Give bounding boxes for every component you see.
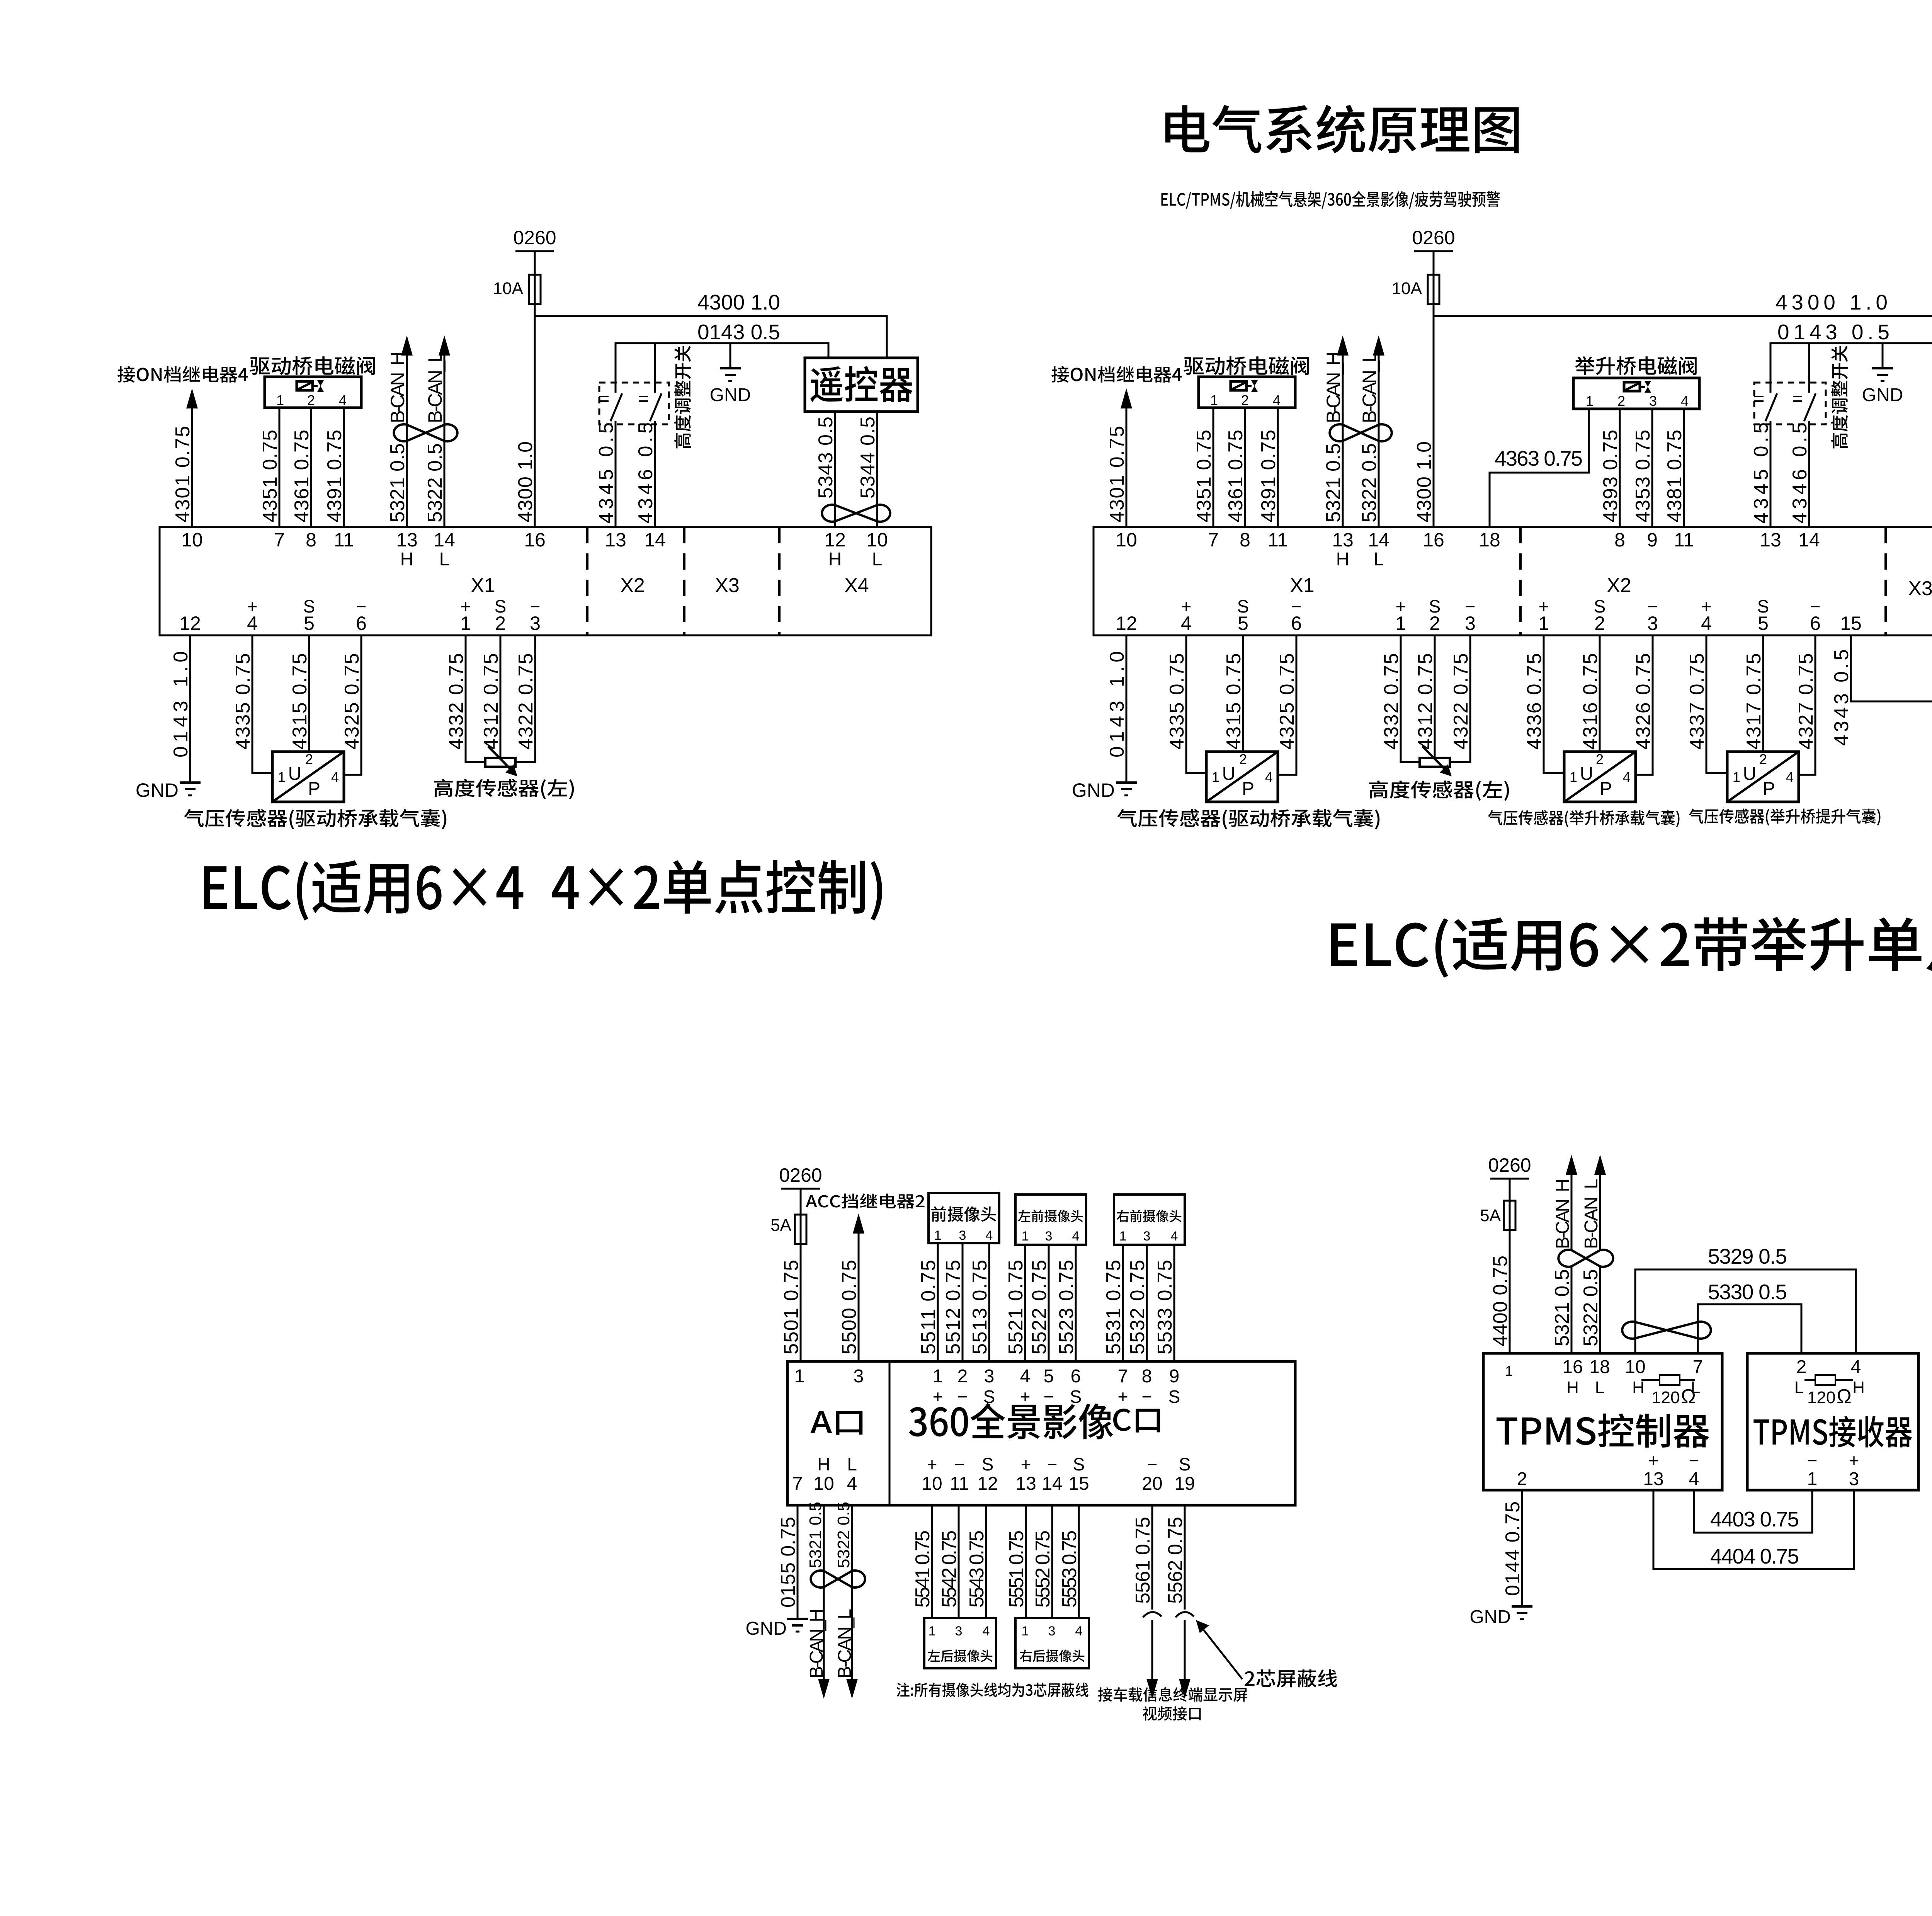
- svg-text:S: S: [1168, 1387, 1180, 1407]
- svg-text:7: 7: [1208, 529, 1219, 551]
- svg-text:5522 0.75: 5522 0.75: [1028, 1260, 1051, 1354]
- svg-text:4337 0.75: 4337 0.75: [1686, 653, 1708, 750]
- svg-text:4345 0.5: 4345 0.5: [595, 422, 617, 524]
- svg-text:1: 1: [1733, 769, 1740, 785]
- svg-text:+: +: [247, 596, 258, 616]
- svg-text:B-CAN_H: B-CAN_H: [806, 1609, 827, 1678]
- svg-text:−: −: [1689, 1450, 1699, 1470]
- svg-text:GND: GND: [710, 385, 751, 405]
- svg-text:4300 1.0: 4300 1.0: [1776, 290, 1888, 314]
- svg-text:4: 4: [1681, 393, 1689, 409]
- svg-text:4: 4: [1072, 1229, 1080, 1244]
- svg-text:5523 0.75: 5523 0.75: [1055, 1260, 1078, 1354]
- svg-text:X2: X2: [1607, 574, 1631, 597]
- svg-text:4322 0.75: 4322 0.75: [515, 653, 537, 750]
- svg-text:S: S: [1179, 1454, 1191, 1474]
- svg-text:B-CAN_H: B-CAN_H: [1553, 1179, 1573, 1249]
- svg-text:5501 0.75: 5501 0.75: [780, 1260, 803, 1354]
- svg-text:3: 3: [955, 1624, 963, 1639]
- svg-text:10A: 10A: [1392, 279, 1422, 298]
- svg-text:4393 0.75: 4393 0.75: [1599, 430, 1622, 522]
- svg-text:4335 0.75: 4335 0.75: [232, 653, 254, 750]
- svg-text:+: +: [1849, 1450, 1859, 1470]
- svg-text:9: 9: [1169, 1366, 1180, 1387]
- svg-text:+: +: [1118, 1387, 1128, 1407]
- svg-text:1: 1: [934, 1228, 942, 1243]
- svg-text:−: −: [1291, 596, 1302, 616]
- svg-text:1: 1: [933, 1366, 943, 1387]
- svg-text:5541 0.75: 5541 0.75: [912, 1530, 934, 1608]
- svg-text:+: +: [1701, 596, 1712, 616]
- svg-text:3: 3: [854, 1366, 864, 1387]
- svg-text:4322 0.75: 4322 0.75: [1450, 653, 1472, 750]
- svg-text:4325 0.75: 4325 0.75: [341, 653, 363, 750]
- svg-text:4: 4: [1171, 1229, 1178, 1244]
- svg-text:5330 0.5: 5330 0.5: [1708, 1280, 1787, 1304]
- svg-text:4301 0.75: 4301 0.75: [1106, 426, 1128, 522]
- svg-text:2: 2: [1517, 1469, 1527, 1489]
- svg-text:4300 1.0: 4300 1.0: [1413, 441, 1435, 522]
- svg-text:U: U: [1222, 764, 1236, 784]
- svg-text:−: −: [957, 1387, 968, 1407]
- svg-text:+: +: [1648, 1450, 1659, 1470]
- svg-text:14: 14: [1042, 1474, 1062, 1494]
- svg-text:11: 11: [950, 1474, 969, 1494]
- svg-text:4301 0.75: 4301 0.75: [172, 426, 194, 522]
- svg-text:14: 14: [644, 529, 666, 551]
- svg-text:5531 0.75: 5531 0.75: [1102, 1260, 1125, 1354]
- svg-text:GND: GND: [1072, 779, 1115, 801]
- svg-text:+: +: [1396, 596, 1406, 616]
- svg-text:U: U: [1580, 764, 1594, 784]
- svg-text:2: 2: [1759, 751, 1767, 767]
- svg-text:13: 13: [1643, 1469, 1663, 1489]
- svg-text:2: 2: [305, 751, 313, 767]
- svg-text:0260: 0260: [779, 1164, 822, 1186]
- svg-text:4: 4: [983, 1624, 990, 1639]
- svg-text:5321 0.5: 5321 0.5: [386, 443, 409, 522]
- svg-text:L: L: [847, 1454, 857, 1474]
- svg-text:0144 0.75: 0144 0.75: [1502, 1501, 1524, 1596]
- svg-text:3: 3: [1143, 1229, 1151, 1244]
- svg-text:3: 3: [1045, 1229, 1053, 1244]
- svg-text:4400 0.75: 4400 0.75: [1489, 1256, 1512, 1346]
- svg-text:5343 0.5: 5343 0.5: [815, 417, 837, 499]
- svg-text:0143 0.5: 0143 0.5: [697, 320, 780, 344]
- svg-text:S: S: [1594, 596, 1606, 616]
- svg-text:15: 15: [1068, 1474, 1089, 1494]
- svg-text:4: 4: [986, 1228, 993, 1243]
- svg-text:0143 1.0: 0143 1.0: [170, 651, 192, 757]
- svg-text:13: 13: [1332, 529, 1354, 551]
- svg-text:5322 0.5: 5322 0.5: [424, 443, 446, 522]
- svg-text:5562 0.75: 5562 0.75: [1164, 1517, 1187, 1604]
- svg-text:14: 14: [1798, 529, 1820, 551]
- svg-text:P: P: [1600, 779, 1612, 799]
- svg-text:+: +: [1020, 1387, 1031, 1407]
- svg-text:5552 0.75: 5552 0.75: [1032, 1530, 1054, 1608]
- svg-text:−: −: [1807, 1450, 1818, 1470]
- svg-text:4: 4: [1265, 769, 1273, 785]
- svg-text:2: 2: [1596, 751, 1604, 767]
- svg-text:4315 0.75: 4315 0.75: [1223, 653, 1245, 750]
- svg-text:B-CAN_L: B-CAN_L: [1359, 352, 1380, 423]
- svg-text:−: −: [1648, 596, 1658, 616]
- svg-text:7: 7: [1118, 1366, 1128, 1387]
- svg-text:P: P: [1242, 779, 1254, 799]
- svg-text:S: S: [1757, 596, 1769, 616]
- svg-text:4381 0.75: 4381 0.75: [1663, 430, 1686, 522]
- svg-text:7: 7: [274, 529, 285, 551]
- svg-text:4325 0.75: 4325 0.75: [1276, 653, 1298, 750]
- svg-text:1: 1: [929, 1624, 936, 1639]
- svg-text:P: P: [308, 779, 320, 799]
- svg-text:5533 0.75: 5533 0.75: [1154, 1260, 1176, 1354]
- svg-text:5551 0.75: 5551 0.75: [1005, 1530, 1028, 1608]
- svg-text:11: 11: [1674, 529, 1694, 551]
- svg-text:L: L: [872, 549, 883, 570]
- svg-text:5322 0.5: 5322 0.5: [834, 1502, 853, 1568]
- svg-text:5521 0.75: 5521 0.75: [1005, 1260, 1027, 1354]
- svg-text:3: 3: [984, 1366, 995, 1387]
- svg-text:5543 0.75: 5543 0.75: [966, 1530, 988, 1608]
- svg-text:3: 3: [1649, 393, 1657, 409]
- svg-text:0260: 0260: [513, 227, 556, 248]
- svg-text:L: L: [1794, 1378, 1804, 1397]
- svg-text:1: 1: [794, 1366, 805, 1387]
- svg-text:4345 0.5: 4345 0.5: [1750, 422, 1772, 524]
- svg-text:13: 13: [396, 529, 418, 551]
- svg-text:X2: X2: [620, 574, 645, 597]
- svg-text:120: 120: [1807, 1388, 1835, 1407]
- svg-text:10: 10: [922, 1474, 942, 1494]
- svg-text:L: L: [1595, 1378, 1604, 1397]
- svg-text:16: 16: [524, 529, 546, 551]
- svg-text:1: 1: [1210, 392, 1218, 408]
- svg-text:8: 8: [1142, 1366, 1152, 1387]
- svg-text:U: U: [1743, 764, 1757, 784]
- svg-text:4336 0.75: 4336 0.75: [1523, 653, 1546, 750]
- svg-text:S: S: [1070, 1387, 1082, 1407]
- svg-text:16: 16: [1562, 1357, 1583, 1377]
- svg-text:+: +: [933, 1387, 943, 1407]
- svg-text:+: +: [1181, 596, 1192, 616]
- svg-text:4361 0.75: 4361 0.75: [1225, 430, 1247, 522]
- svg-text:12: 12: [1116, 613, 1137, 634]
- svg-text:10: 10: [1116, 529, 1137, 551]
- svg-text:0260: 0260: [1412, 227, 1455, 248]
- svg-text:1: 1: [1022, 1624, 1029, 1639]
- svg-text:9: 9: [1647, 529, 1658, 551]
- svg-text:8: 8: [1614, 529, 1625, 551]
- svg-text:H: H: [1632, 1378, 1645, 1397]
- svg-text:L: L: [439, 549, 450, 570]
- svg-text:16: 16: [1423, 529, 1444, 551]
- svg-text:5329 0.5: 5329 0.5: [1708, 1244, 1787, 1268]
- svg-text:4346 0.5: 4346 0.5: [634, 422, 657, 524]
- svg-text:13: 13: [1015, 1474, 1036, 1494]
- svg-text:L: L: [1374, 549, 1384, 570]
- svg-text:5A: 5A: [770, 1216, 791, 1235]
- svg-text:4: 4: [1273, 392, 1281, 408]
- svg-text:1: 1: [1119, 1229, 1127, 1244]
- svg-text:10: 10: [813, 1474, 834, 1494]
- svg-text:5561 0.75: 5561 0.75: [1132, 1517, 1154, 1604]
- svg-text:−: −: [954, 1454, 965, 1474]
- svg-text:10: 10: [866, 529, 888, 551]
- svg-text:4: 4: [339, 392, 347, 408]
- svg-text:18: 18: [1589, 1357, 1610, 1377]
- svg-text:3: 3: [1048, 1624, 1056, 1639]
- svg-text:1: 1: [1570, 769, 1577, 785]
- svg-text:4326 0.75: 4326 0.75: [1632, 653, 1655, 750]
- svg-text:Ω: Ω: [1681, 1385, 1696, 1408]
- svg-text:4312 0.75: 4312 0.75: [1414, 653, 1437, 750]
- svg-text:S: S: [1073, 1454, 1085, 1474]
- svg-text:5: 5: [1044, 1366, 1054, 1387]
- svg-text:10: 10: [181, 529, 203, 551]
- svg-text:H: H: [817, 1454, 830, 1474]
- svg-text:8: 8: [1240, 529, 1250, 551]
- svg-text:4300 1.0: 4300 1.0: [514, 441, 537, 522]
- svg-text:4403 0.75: 4403 0.75: [1710, 1507, 1799, 1531]
- svg-text:0143 0.5: 0143 0.5: [1777, 320, 1889, 344]
- svg-text:Ω: Ω: [1837, 1385, 1852, 1408]
- svg-text:B-CAN_L: B-CAN_L: [424, 352, 446, 423]
- svg-text:4343 0.5: 4343 0.5: [1830, 649, 1853, 746]
- svg-text:4300 1.0: 4300 1.0: [697, 290, 780, 314]
- svg-text:4: 4: [847, 1474, 857, 1494]
- svg-text:4332 0.75: 4332 0.75: [1380, 653, 1403, 750]
- svg-text:4316 0.75: 4316 0.75: [1579, 653, 1602, 750]
- svg-text:5321 0.5: 5321 0.5: [1551, 1269, 1573, 1346]
- svg-text:5542 0.75: 5542 0.75: [938, 1530, 961, 1608]
- svg-text:4351 0.75: 4351 0.75: [259, 430, 281, 522]
- svg-text:H: H: [828, 549, 842, 570]
- svg-text:2: 2: [1239, 751, 1247, 767]
- svg-text:−: −: [1147, 1454, 1158, 1474]
- svg-text:GND: GND: [1862, 385, 1903, 405]
- svg-text:4353 0.75: 4353 0.75: [1632, 430, 1654, 522]
- svg-text:5321 0.5: 5321 0.5: [1322, 443, 1345, 522]
- svg-text:1: 1: [276, 392, 284, 408]
- svg-text:5322 0.5: 5322 0.5: [1580, 1269, 1602, 1346]
- svg-text:0155 0.75: 0155 0.75: [777, 1517, 799, 1608]
- svg-text:8: 8: [306, 529, 316, 551]
- svg-text:11: 11: [334, 529, 354, 551]
- svg-text:−: −: [1465, 596, 1476, 616]
- svg-text:12: 12: [179, 613, 201, 634]
- svg-text:2: 2: [1796, 1357, 1807, 1377]
- svg-text:U: U: [288, 764, 302, 784]
- svg-text:S: S: [982, 1454, 994, 1474]
- svg-text:20: 20: [1142, 1474, 1162, 1494]
- svg-text:1: 1: [1807, 1469, 1818, 1489]
- svg-text:5532 0.75: 5532 0.75: [1126, 1260, 1149, 1354]
- svg-text:1: 1: [1212, 769, 1219, 785]
- svg-text:5322 0.5: 5322 0.5: [1358, 443, 1381, 522]
- svg-text:2: 2: [1617, 393, 1625, 409]
- svg-text:X4: X4: [844, 574, 869, 597]
- svg-text:6: 6: [1071, 1366, 1081, 1387]
- svg-text:7: 7: [1693, 1357, 1703, 1377]
- svg-text:5A: 5A: [1480, 1206, 1501, 1225]
- svg-text:15: 15: [1840, 613, 1862, 634]
- svg-text:4346 0.5: 4346 0.5: [1789, 422, 1811, 524]
- svg-text:H: H: [1336, 549, 1350, 570]
- svg-text:4: 4: [1623, 769, 1631, 785]
- svg-text:0143 1.0: 0143 1.0: [1106, 651, 1128, 757]
- svg-text:4363 0.75: 4363 0.75: [1495, 446, 1583, 470]
- svg-text:−: −: [1142, 1387, 1152, 1407]
- svg-text:4312 0.75: 4312 0.75: [480, 653, 502, 750]
- svg-text:X1: X1: [1290, 574, 1315, 597]
- svg-text:13: 13: [605, 529, 626, 551]
- svg-text:4315 0.75: 4315 0.75: [289, 653, 311, 750]
- svg-text:GND: GND: [1469, 1607, 1511, 1627]
- svg-text:11: 11: [1268, 529, 1288, 551]
- svg-text:S: S: [303, 596, 315, 616]
- svg-text:4391 0.75: 4391 0.75: [1257, 430, 1280, 522]
- svg-text:0260: 0260: [1488, 1154, 1531, 1176]
- svg-text:4: 4: [331, 769, 339, 785]
- svg-text:H: H: [1852, 1378, 1865, 1397]
- svg-text:1: 1: [1022, 1229, 1029, 1244]
- svg-text:2: 2: [1241, 392, 1249, 408]
- svg-text:12: 12: [824, 529, 846, 551]
- svg-text:5344 0.5: 5344 0.5: [857, 417, 879, 499]
- svg-text:1: 1: [1586, 393, 1594, 409]
- svg-text:1: 1: [278, 769, 286, 785]
- svg-text:+: +: [461, 596, 471, 616]
- svg-text:−: −: [530, 596, 541, 616]
- svg-text:P: P: [1763, 779, 1775, 799]
- svg-text:4317 0.75: 4317 0.75: [1743, 653, 1765, 750]
- svg-text:4: 4: [1786, 769, 1794, 785]
- svg-text:3: 3: [1849, 1469, 1859, 1489]
- svg-text:2: 2: [957, 1366, 968, 1387]
- svg-text:5513 0.75: 5513 0.75: [969, 1260, 991, 1354]
- svg-text:4361 0.75: 4361 0.75: [291, 430, 313, 522]
- svg-text:14: 14: [434, 529, 455, 551]
- svg-text:−: −: [1044, 1387, 1054, 1407]
- svg-text:19: 19: [1174, 1474, 1195, 1494]
- svg-text:−: −: [356, 596, 367, 616]
- svg-text:B-CAN_L: B-CAN_L: [1581, 1179, 1602, 1249]
- svg-text:10: 10: [1625, 1357, 1645, 1377]
- svg-text:10A: 10A: [493, 279, 524, 298]
- svg-text:5500 0.75: 5500 0.75: [838, 1260, 861, 1354]
- svg-text:4335 0.75: 4335 0.75: [1166, 653, 1188, 750]
- svg-text:S: S: [1237, 596, 1249, 616]
- svg-text:+: +: [927, 1454, 937, 1474]
- svg-text:B-CAN_H: B-CAN_H: [387, 352, 408, 423]
- svg-text:5512 0.75: 5512 0.75: [942, 1260, 964, 1354]
- svg-text:4: 4: [1020, 1366, 1031, 1387]
- svg-text:GND: GND: [745, 1618, 787, 1639]
- svg-text:S: S: [1429, 596, 1441, 616]
- svg-text:4332 0.75: 4332 0.75: [445, 653, 468, 750]
- svg-text:+: +: [1021, 1454, 1031, 1474]
- svg-text:18: 18: [1479, 529, 1500, 551]
- svg-text:4351 0.75: 4351 0.75: [1193, 430, 1215, 522]
- svg-text:GND: GND: [136, 779, 179, 801]
- svg-text:B-CAN_L: B-CAN_L: [835, 1609, 855, 1678]
- svg-text:7: 7: [793, 1474, 803, 1494]
- svg-text:2: 2: [307, 392, 315, 408]
- svg-text:X3: X3: [715, 574, 740, 597]
- svg-text:14: 14: [1368, 529, 1389, 551]
- svg-text:4: 4: [1689, 1469, 1699, 1489]
- svg-text:4: 4: [1851, 1357, 1861, 1377]
- svg-text:120: 120: [1651, 1388, 1680, 1407]
- svg-text:S: S: [983, 1387, 995, 1407]
- svg-text:X3: X3: [1908, 577, 1932, 600]
- svg-text:H: H: [400, 549, 414, 570]
- svg-text:4404 0.75: 4404 0.75: [1710, 1544, 1799, 1568]
- svg-text:B-CAN_H: B-CAN_H: [1323, 352, 1344, 423]
- svg-text:12: 12: [977, 1474, 998, 1494]
- svg-text:H: H: [1566, 1378, 1579, 1397]
- svg-text:3: 3: [959, 1228, 966, 1243]
- svg-text:X1: X1: [471, 574, 495, 597]
- svg-text:4327 0.75: 4327 0.75: [1795, 653, 1817, 750]
- svg-text:5321 0.5: 5321 0.5: [806, 1502, 825, 1568]
- svg-text:5553 0.75: 5553 0.75: [1058, 1530, 1081, 1608]
- svg-text:4: 4: [1075, 1624, 1083, 1639]
- svg-text:4391 0.75: 4391 0.75: [323, 430, 346, 522]
- svg-text:S: S: [495, 596, 507, 616]
- svg-text:−: −: [1810, 596, 1821, 616]
- svg-text:−: −: [1047, 1454, 1058, 1474]
- svg-text:1: 1: [1505, 1363, 1513, 1379]
- svg-text:5511 0.75: 5511 0.75: [917, 1260, 940, 1354]
- svg-text:+: +: [1539, 596, 1549, 616]
- svg-text:13: 13: [1760, 529, 1781, 551]
